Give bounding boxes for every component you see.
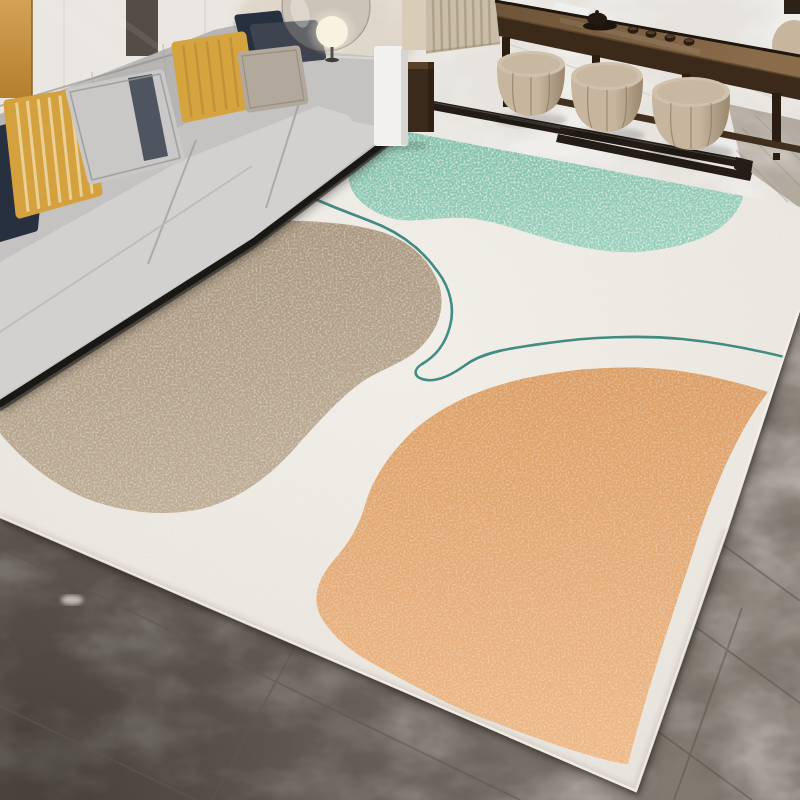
wall-beige-sliver [402,0,428,50]
teapot-lid-knob [595,10,599,14]
floor-vein-highlight [61,595,83,605]
curtain-area [402,0,500,54]
lamp-globe [316,16,348,48]
side-table-shade [401,49,408,145]
teapot [587,13,607,26]
ottoman-3-cushion [657,80,725,104]
lamp-pole [331,47,334,59]
scene-canvas [0,0,800,800]
ottoman-1-cushion [502,54,560,74]
living-room-photo [0,0,800,800]
wood-cabinet-edge [428,62,434,132]
gold-wall-panel [0,0,32,98]
pillow-mustard [176,34,252,122]
ottoman-2-cushion [576,65,638,87]
lamp-base [325,58,339,62]
far-corner-object [784,0,800,14]
pillow-gray-banded [70,74,180,180]
pillow-taupe [242,50,304,108]
